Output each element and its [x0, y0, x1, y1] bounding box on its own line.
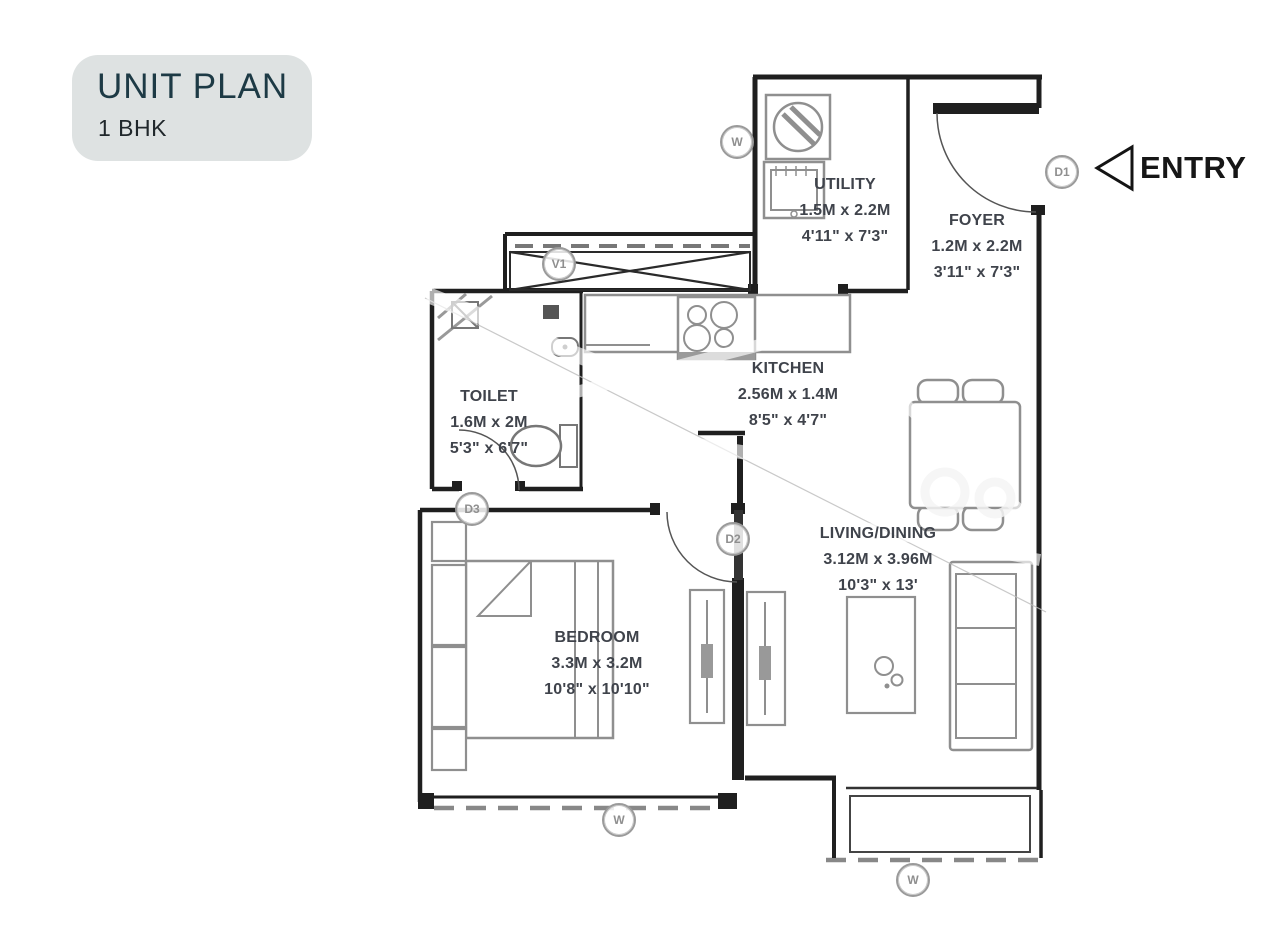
room-label-toilet: TOILET 1.6M x 2M 5'3" x 6'7"	[379, 384, 599, 462]
room-size-imperial: 3'11" x 7'3"	[867, 260, 1087, 286]
room-name: LIVING/DINING	[768, 521, 988, 547]
room-label-kitchen: KITCHEN 2.56M x 1.4M 8'5" x 4'7"	[678, 356, 898, 434]
marker-door-d2: D2	[716, 522, 750, 556]
room-label-living-dining: LIVING/DINING 3.12M x 3.96M 10'3" x 13'	[768, 521, 988, 599]
room-size-metric: 3.3M x 3.2M	[487, 651, 707, 677]
room-name: BEDROOM	[487, 625, 707, 651]
entry-label: ENTRY	[1140, 150, 1246, 186]
page-title: UNIT PLAN	[97, 67, 288, 107]
room-name: TOILET	[379, 384, 599, 410]
marker-window-utility: W	[720, 125, 754, 159]
coffee-table	[847, 597, 915, 713]
room-label-foyer: FOYER 1.2M x 2.2M 3'11" x 7'3"	[867, 208, 1087, 286]
title-card: UNIT PLAN 1 BHK	[72, 55, 312, 161]
room-name: FOYER	[867, 208, 1087, 234]
room-size-imperial: 5'3" x 6'7"	[379, 436, 599, 462]
room-name: KITCHEN	[678, 356, 898, 382]
marker-door-d1: D1	[1045, 155, 1079, 189]
room-size-metric: 1.2M x 2.2M	[867, 234, 1087, 260]
balcony	[834, 778, 1041, 858]
entry-arrow-icon	[1097, 147, 1132, 189]
dining-chair	[918, 380, 958, 404]
room-label-bedroom: BEDROOM 3.3M x 3.2M 10'8" x 10'10"	[487, 625, 707, 703]
marker-door-d3: D3	[455, 492, 489, 526]
room-size-imperial: 8'5" x 4'7"	[678, 408, 898, 434]
marker-window-bedroom: W	[602, 803, 636, 837]
room-size-imperial: 10'3" x 13'	[768, 573, 988, 599]
bedside-units	[432, 522, 466, 770]
room-size-metric: 1.6M x 2M	[379, 410, 599, 436]
washing-machine	[766, 95, 830, 159]
room-size-metric: 3.12M x 3.96M	[768, 547, 988, 573]
marker-vent-v1: V1	[542, 247, 576, 281]
room-size-metric: 2.56M x 1.4M	[678, 382, 898, 408]
marker-window-living: W	[896, 863, 930, 897]
page-subtitle: 1 BHK	[98, 115, 167, 142]
tv-unit-living	[747, 592, 785, 725]
unit-plan-page: UNIT PLAN 1 BHK ENTRY UTILITY 1.5M x 2.2…	[0, 0, 1280, 945]
room-name: UTILITY	[735, 172, 955, 198]
dining-chair	[963, 380, 1003, 404]
room-size-imperial: 10'8" x 10'10"	[487, 677, 707, 703]
